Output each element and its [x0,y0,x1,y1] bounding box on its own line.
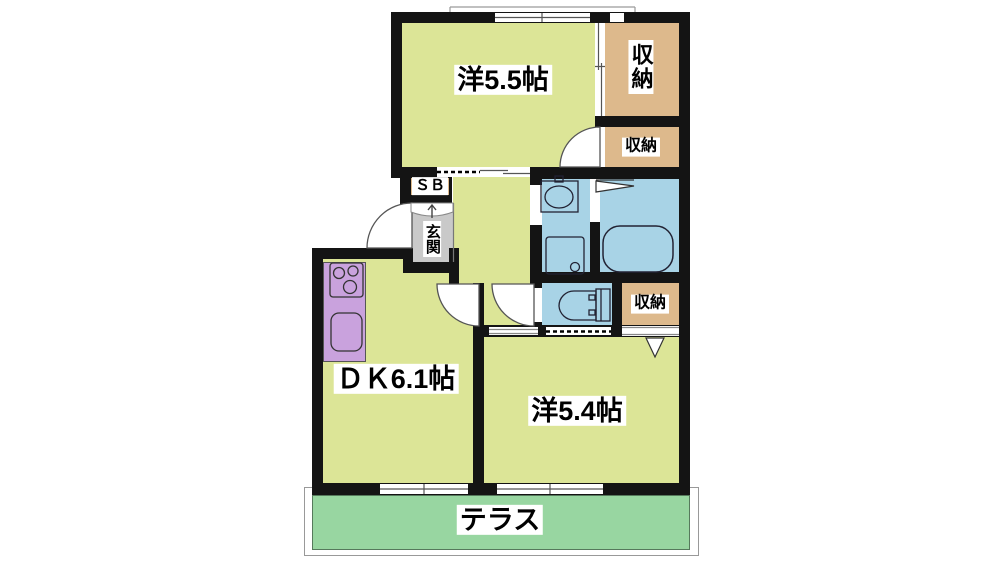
room-label-west54: 洋5.4帖 [528,396,626,426]
floorplan: 洋5.5帖 収納 収納 ＳＢ 玄関 収納 ＤＫ6.1帖 洋5.4帖 テラス [0,0,1000,562]
terrace-label: テラス [457,505,543,535]
washing-machine-pan-icon [546,237,584,274]
west54-door-arc [492,284,534,326]
room-label-west55: 洋5.5帖 [454,65,552,95]
closet3-door-icon [646,338,664,357]
stove-icon [330,263,363,297]
entrance-door-arc [367,203,412,248]
entrance-label: 玄関 [423,221,441,257]
dk-door-arc [437,284,479,326]
toilet-icon [559,289,610,321]
room-label-closet3: 収納 [631,295,669,314]
kitchen-sink-icon [331,313,362,351]
bathtub-icon [603,226,673,272]
room-label-closet2: 収納 [622,138,660,157]
room-label-closet1: 収納 [628,40,653,94]
bath-door-icon [596,180,634,192]
window-sill [450,7,635,12]
washbasin-icon [541,176,578,212]
entrance-step [411,203,453,218]
closet2-door-arc [560,127,600,167]
room-label-dk: ＤＫ6.1帖 [334,364,459,394]
shoebox-label: ＳＢ [412,177,448,195]
door-arcs [367,127,600,326]
